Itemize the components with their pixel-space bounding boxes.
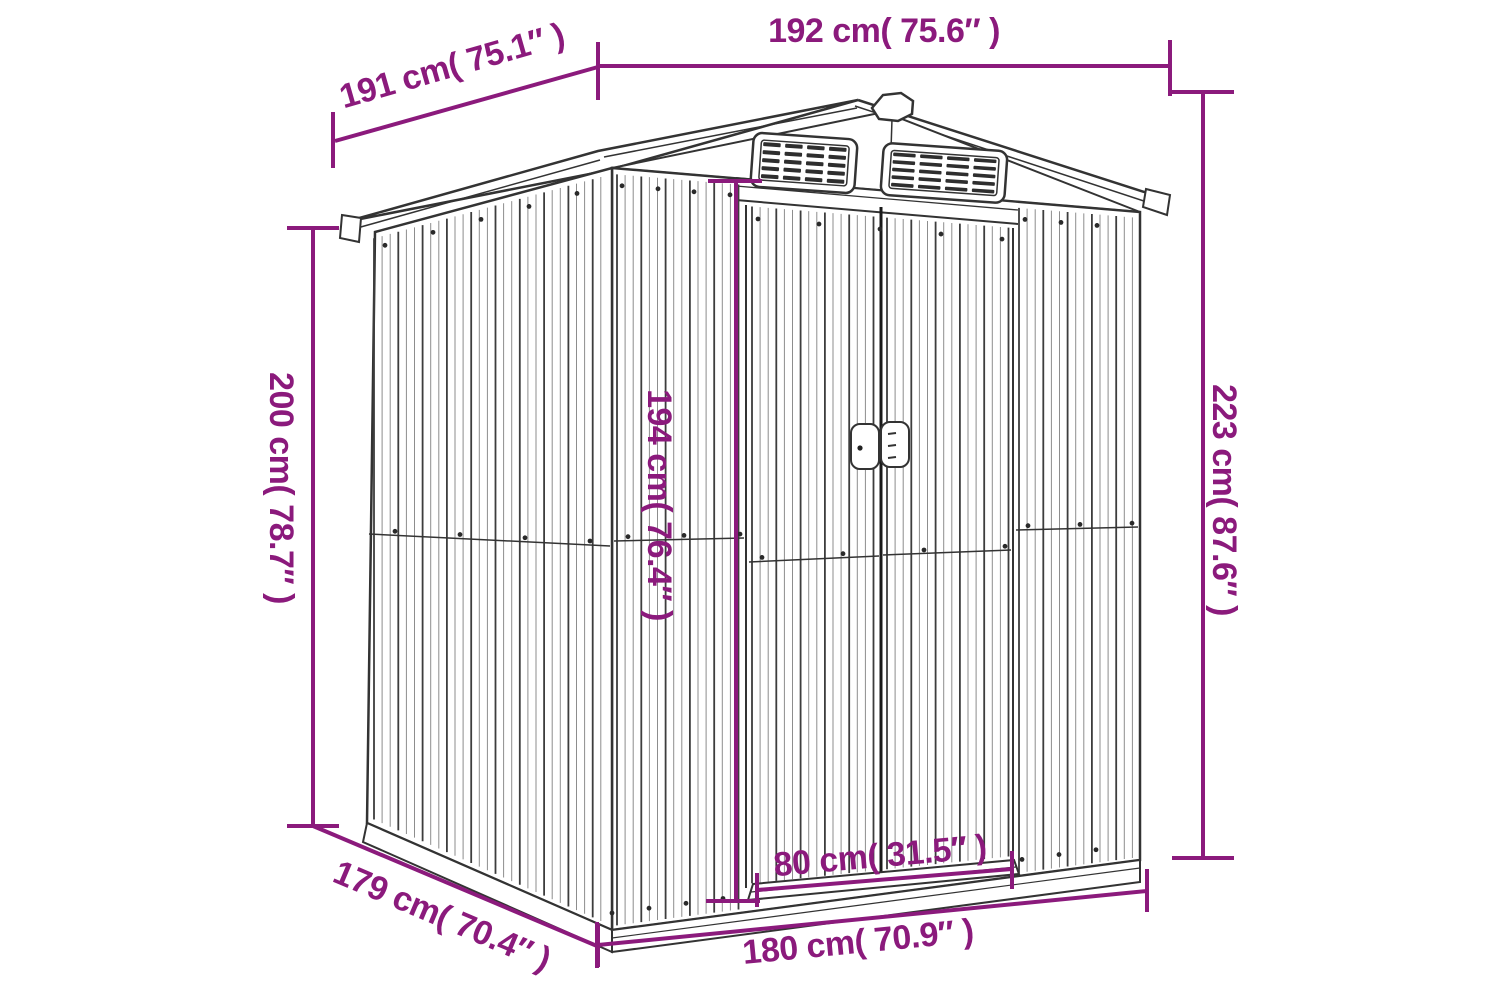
roof-apex-cap <box>872 93 913 121</box>
shed <box>340 93 1170 952</box>
gable-vent-right-icon <box>880 143 1007 204</box>
gable-vent-left-icon <box>750 132 858 193</box>
dimension-label-total-height: 223 cm( 87.6″ ) <box>1207 384 1241 616</box>
left-eave-cap <box>340 215 361 242</box>
dimension-label-door-height: 194 cm( 76.4″ ) <box>642 389 676 621</box>
dimension-label-roof-width: 192 cm( 75.6″ ) <box>768 14 1000 48</box>
right-eave-cap <box>1143 189 1170 215</box>
side-wall <box>367 168 612 930</box>
shed-line-drawing <box>0 0 1500 1000</box>
dimension-label-wall-height: 200 cm( 78.7″ ) <box>264 372 298 604</box>
diagram-canvas: 192 cm( 75.6″ ) 191 cm( 75.1″ ) 223 cm( … <box>0 0 1500 1000</box>
front-wall <box>612 168 1140 930</box>
